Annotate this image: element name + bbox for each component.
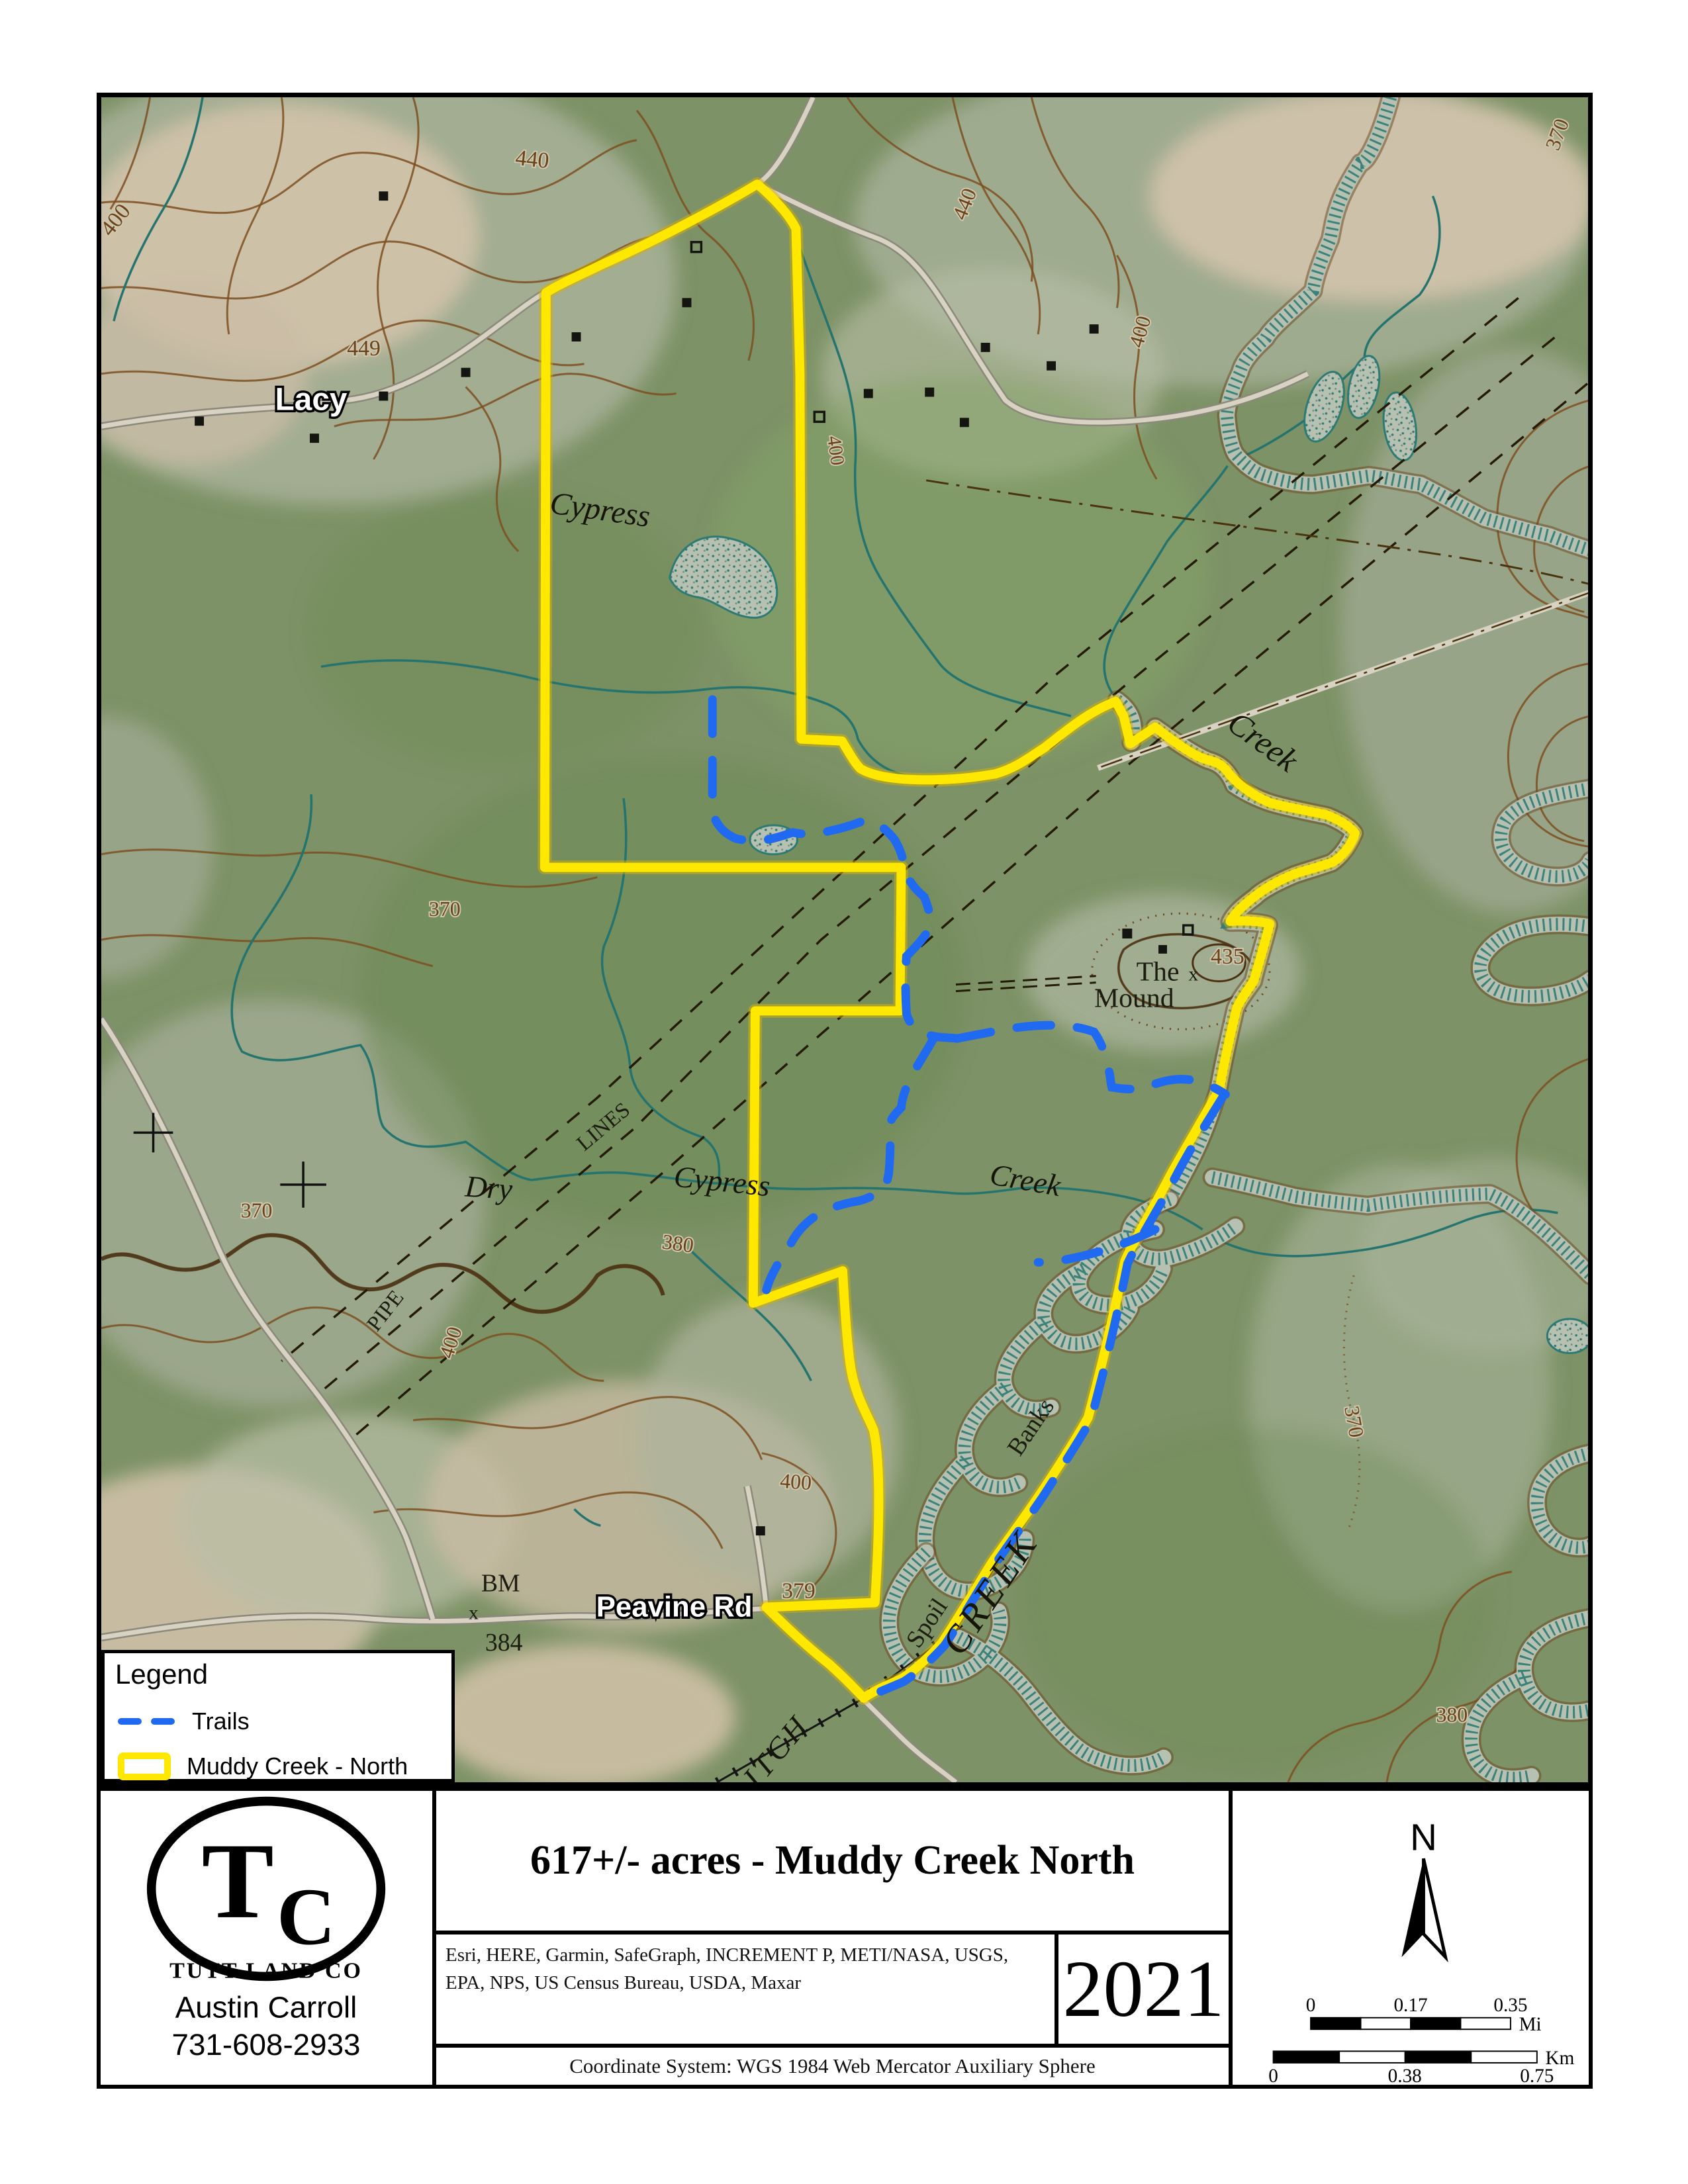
legend-item-trails: Trails [118,1707,451,1735]
north-arrow-and-scale: N 0 0.17 0.35 Mi Km [1233,1791,1589,2085]
scale-bar-km: Km 0 0.38 0.75 [1268,2048,1574,2085]
label-bm: BM [481,1570,520,1598]
legend-item-boundary: Muddy Creek - North [118,1752,451,1780]
agent-name: Austin Carroll [175,1991,357,2025]
contour-label-435: 435 [1211,944,1244,969]
contour-label-380-a: 380 [661,1230,695,1257]
year-box: 2021 [1055,1931,1233,2048]
map-area: Lacy 449 440 400 400 Cypress Creek The M… [97,93,1593,1787]
flyer-page: Lacy 449 440 400 400 Cypress Creek The M… [0,0,1688,2184]
road-label-peavine: Peavine Rd [596,1590,753,1623]
title-box: 617+/- acres - Muddy Creek North [432,1787,1233,1934]
logo-company-name: TUTT LAND CO [169,1958,363,1983]
north-label: N [1410,1817,1437,1858]
spot-x-mound: x [1188,964,1198,985]
contour-label-400-midright: 400 [823,434,849,467]
contour-label-449: 449 [347,336,381,361]
label-384: 384 [485,1629,523,1657]
legend-item-label: Muddy Creek - North [187,1752,408,1780]
north-arrow-icon [1401,1858,1445,1957]
agent-phone: 731-608-2933 [172,2028,361,2062]
coordinate-system-text: Coordinate System: WGS 1984 Web Mercator… [569,2054,1095,2078]
logo-monogram-c: C [277,1872,336,1962]
legend: Legend Trails Muddy Creek - North [101,1650,455,1782]
scale-bar-miles: 0 0.17 0.35 Mi [1306,1995,1542,2035]
map-title: 617+/- acres - Muddy Creek North [530,1837,1135,1884]
trail-dash-swatch [118,1718,175,1725]
contour-label-379: 379 [782,1579,816,1604]
attribution-box: Esri, HERE, Garmin, SafeGraph, INCREMENT… [432,1931,1058,2048]
mi-tick-mid: 0.17 [1393,1995,1427,2016]
km-tick-mid: 0.38 [1388,2066,1422,2085]
map-label-lacy: Lacy [275,382,348,417]
contour-label-400-d: 400 [779,1469,812,1494]
km-tick-0: 0 [1268,2066,1278,2085]
attribution-line1: Esri, HERE, Garmin, SafeGraph, INCREMENT… [445,1941,1045,1969]
coordinate-system-box: Coordinate System: WGS 1984 Web Mercator… [432,2044,1233,2089]
logo-monogram-t: T [202,1821,274,1941]
logo-box: T C TUTT LAND CO Austin Carroll 731-608-… [97,1787,436,2089]
benchmark-x: x [469,1602,479,1623]
north-scale-box: N 0 0.17 0.35 Mi Km [1229,1787,1593,2089]
map-year: 2021 [1063,1943,1225,2036]
mi-unit: Mi [1519,2014,1542,2035]
contour-label-380-b: 380 [1436,1703,1468,1726]
attribution-line2: EPA, NPS, US Census Bureau, USDA, Maxar [445,1969,1045,1997]
map-canvas: Lacy 449 440 400 400 Cypress Creek The M… [101,97,1588,1782]
place-label-mound: Mound [1094,983,1174,1013]
contour-label-440: 440 [514,146,550,173]
boundary-swatch [118,1752,171,1780]
water-label-dry: Dry [463,1169,514,1206]
legend-title: Legend [115,1659,451,1690]
mi-tick-0: 0 [1306,1995,1316,2016]
km-tick-end: 0.75 [1520,2066,1554,2085]
legend-item-label: Trails [192,1707,250,1735]
contour-label-370-b: 370 [241,1199,273,1222]
contour-label-370-a: 370 [429,897,461,921]
tutt-land-logo: T C TUTT LAND CO Austin Carroll 731-608-… [101,1791,432,2085]
mi-tick-end: 0.35 [1493,1995,1527,2016]
